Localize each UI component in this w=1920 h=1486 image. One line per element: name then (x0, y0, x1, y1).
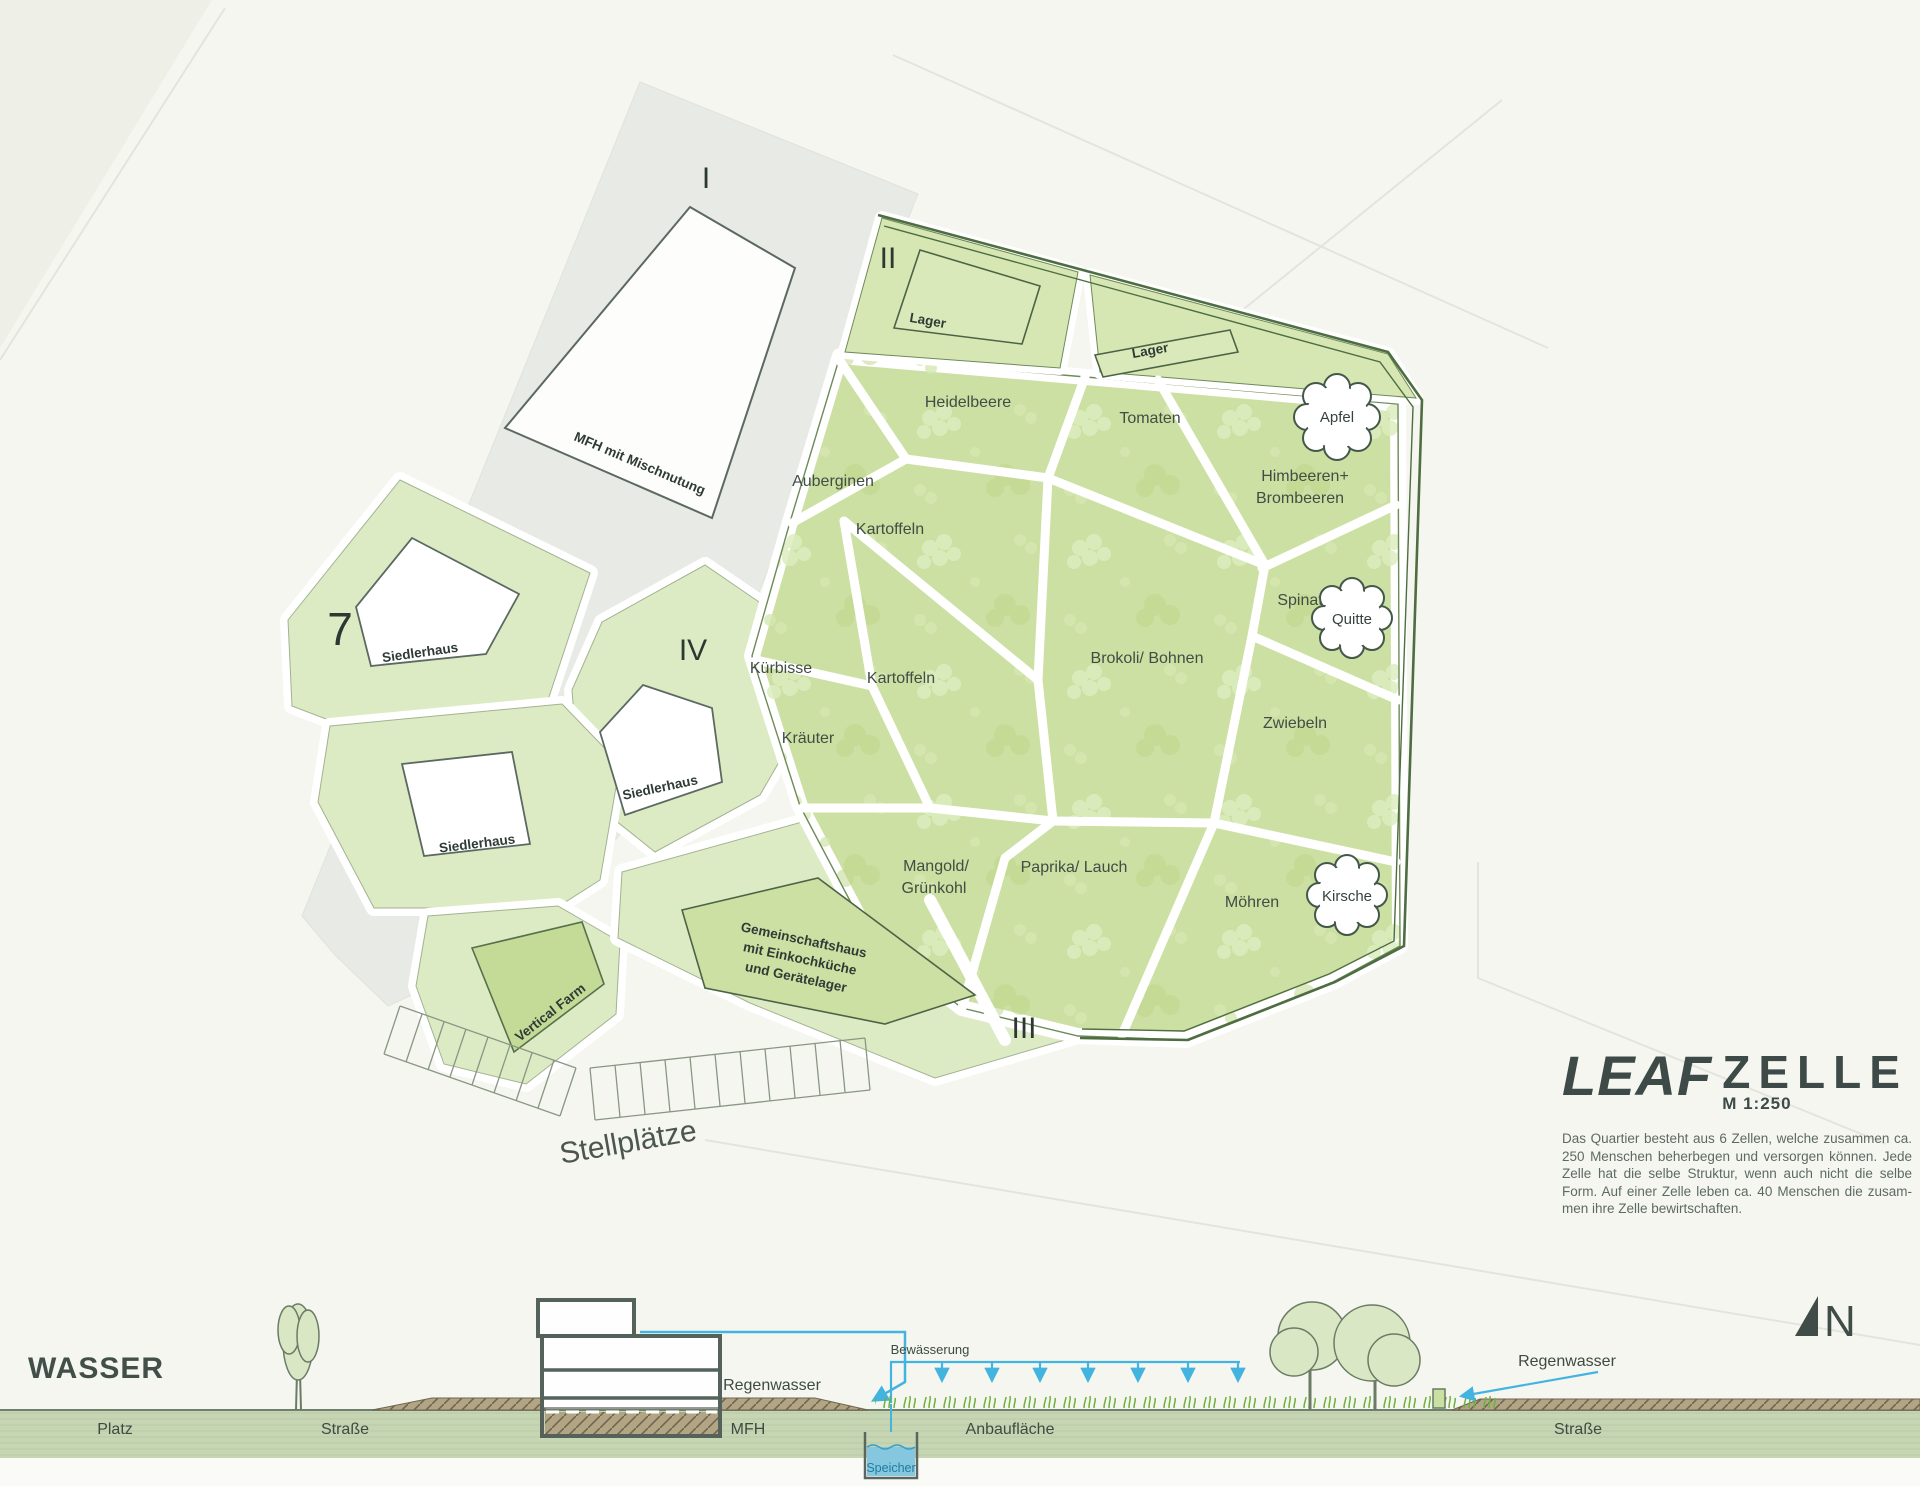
project-description: Das Quartier besteht aus 6 Zellen, welch… (1562, 1130, 1912, 1218)
plot-label-tomaten: Tomaten (1119, 410, 1180, 427)
site-plan-sheet: Apfel Spinat Quitte Kirsche I II III (0, 0, 1920, 1486)
plot-label-zwiebeln: Zwiebeln (1263, 715, 1327, 732)
mfh-upper-floor (538, 1300, 634, 1336)
inlet-block (1433, 1389, 1445, 1408)
anbauflaeche-label: Anbaufläche (966, 1421, 1055, 1438)
plot-label-kraeuter: Kräuter (782, 730, 835, 747)
project-subtitle: ZELLE (1722, 1048, 1908, 1096)
plot-label-brokoli: Brokoli/ Bohnen (1091, 650, 1204, 667)
description-line: Form. Auf einer Zelle leben ca. 40 Mensc… (1562, 1183, 1912, 1201)
plot-label-kartoffeln-oben: Kartoffeln (856, 521, 924, 538)
plot-label-mangold-1: Mangold/ (903, 858, 969, 875)
regenwasser-left-label: Regenwasser (723, 1377, 822, 1394)
platz-label: Platz (97, 1421, 133, 1438)
project-brand: LEAF (1562, 1048, 1712, 1104)
description-line: 250 Menschen beherbegen und versorgen kö… (1562, 1148, 1912, 1166)
description-line: Das Quartier besteht aus 6 Zellen, welch… (1562, 1130, 1912, 1148)
sheet-margin (0, 1458, 1920, 1486)
tree-label-quitte: Quitte (1332, 611, 1372, 628)
title-block: LEAF ZELLE M 1:250 Das Quartier besteht … (1562, 1048, 1912, 1218)
plan-drawing: Apfel Spinat Quitte Kirsche I II III (0, 0, 1920, 1486)
mfh-basement (545, 1412, 718, 1434)
regenwasser-right-label: Regenwasser (1518, 1353, 1617, 1370)
description-line: men ihre Zelle bewirtschaften. (1562, 1200, 1912, 1218)
plot-label-heidelbeere: Heidelbeere (925, 394, 1011, 411)
bewaesserung-label: Bewässerung (891, 1342, 970, 1357)
strasse-left-label: Straße (321, 1421, 369, 1438)
plot-label-paprika: Paprika/ Lauch (1021, 859, 1128, 876)
mfh-section-label: MFH (731, 1421, 766, 1438)
description-line: Zelle hat die selbe Struktur, wenn auch … (1562, 1165, 1912, 1183)
strasse-right-label: Straße (1554, 1421, 1602, 1438)
zone-label-3: III (1011, 1012, 1036, 1045)
grass-strip (875, 1394, 1500, 1410)
plot-label-kuerbisse: Kürbisse (750, 660, 812, 677)
apfel-tree: Apfel (1294, 374, 1380, 460)
section-heading: WASSER (28, 1352, 164, 1386)
north-letter: N (1824, 1297, 1856, 1346)
kirsche-tree: Kirsche (1307, 855, 1387, 935)
block-label-7: 7 (327, 603, 353, 655)
tree-label-apfel: Apfel (1320, 409, 1354, 426)
plot-label-spinat: Spinat (1277, 592, 1323, 609)
plot-label-moehren: Möhren (1225, 894, 1279, 911)
plot-label-kartoffeln-mitte: Kartoffeln (867, 670, 935, 687)
plot-label-mangold-2: Grünkohl (902, 880, 967, 897)
tree-label-kirsche: Kirsche (1322, 888, 1372, 905)
zone-label-4: IV (679, 634, 707, 667)
road-section-right (1452, 1399, 1920, 1410)
ground-texture (0, 1410, 1920, 1458)
zone-label-1: I (702, 162, 710, 195)
plot-label-auberginen: Auberginen (792, 473, 874, 490)
plot-label-himbeeren-1: Himbeeren+ (1261, 468, 1349, 485)
plot-label-himbeeren-2: Brombeeren (1256, 490, 1344, 507)
speicher-label: Speicher (866, 1461, 915, 1475)
zone-label-2: II (880, 242, 897, 275)
